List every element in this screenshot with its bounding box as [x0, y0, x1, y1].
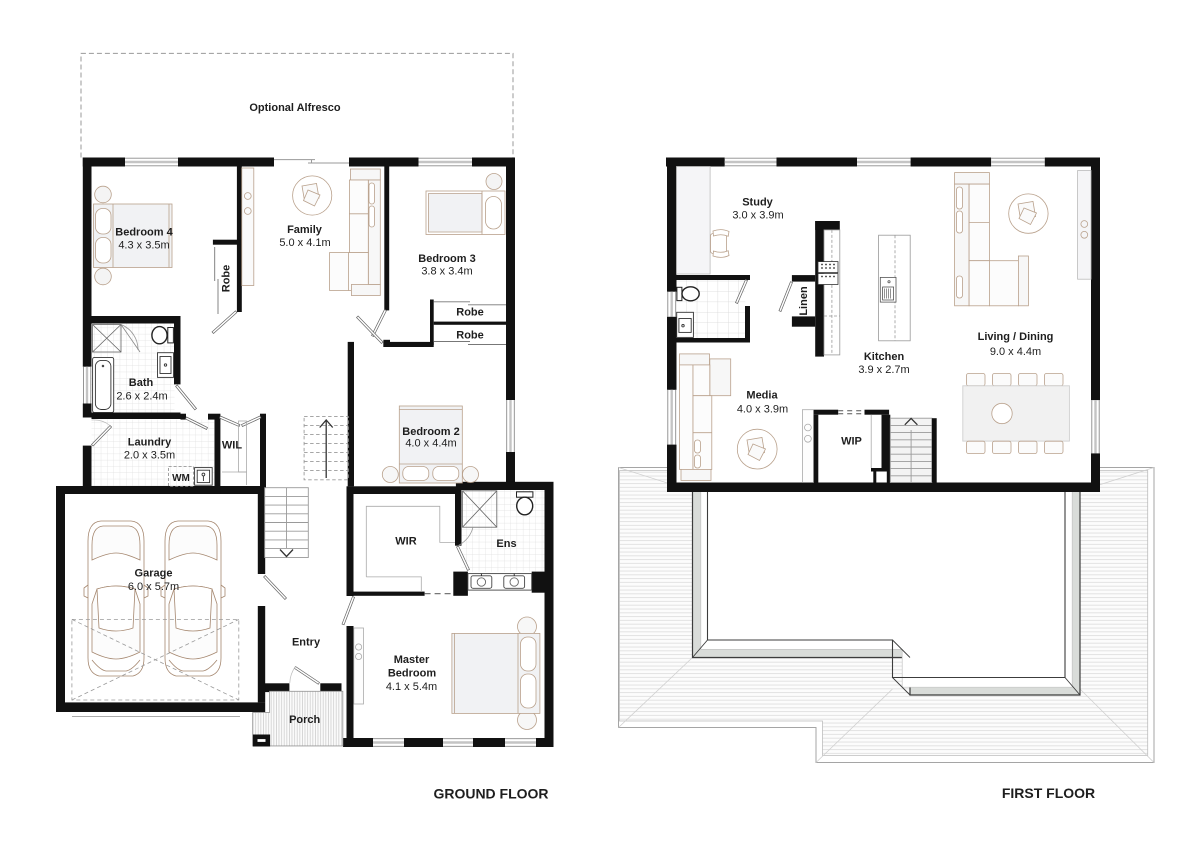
svg-text:3.0 x 3.9m: 3.0 x 3.9m [732, 210, 783, 222]
svg-text:Ens: Ens [496, 538, 516, 550]
svg-text:Media: Media [746, 390, 778, 402]
svg-text:Garage: Garage [135, 568, 173, 580]
svg-text:4.3 x 3.5m: 4.3 x 3.5m [118, 240, 169, 252]
svg-text:WIL: WIL [222, 440, 242, 452]
svg-text:Kitchen: Kitchen [864, 351, 905, 363]
svg-text:2.0 x 3.5m: 2.0 x 3.5m [124, 449, 175, 461]
svg-text:Entry: Entry [292, 637, 321, 649]
svg-text:WM: WM [172, 473, 190, 484]
svg-text:Master: Master [394, 654, 430, 666]
svg-text:Bedroom 3: Bedroom 3 [418, 253, 475, 265]
svg-text:WIR: WIR [395, 536, 416, 548]
svg-text:Study: Study [742, 197, 773, 209]
svg-text:4.0 x 3.9m: 4.0 x 3.9m [737, 404, 788, 416]
svg-text:GROUND FLOOR: GROUND FLOOR [433, 786, 548, 802]
svg-text:Laundry: Laundry [128, 437, 172, 449]
svg-text:Bath: Bath [129, 377, 154, 389]
svg-text:5.0 x 4.1m: 5.0 x 4.1m [279, 237, 330, 249]
svg-text:Bedroom: Bedroom [388, 668, 437, 680]
svg-text:Linen: Linen [798, 286, 810, 316]
svg-text:Bedroom 4: Bedroom 4 [115, 227, 173, 239]
svg-text:WIP: WIP [841, 436, 862, 448]
svg-text:Robe: Robe [456, 307, 484, 319]
svg-text:Optional Alfresco: Optional Alfresco [249, 102, 341, 114]
svg-text:Robe: Robe [456, 329, 484, 341]
svg-text:3.8 x 3.4m: 3.8 x 3.4m [421, 266, 472, 278]
svg-text:4.1 x 5.4m: 4.1 x 5.4m [386, 681, 437, 693]
svg-text:Family: Family [287, 224, 323, 236]
svg-text:Living / Dining: Living / Dining [978, 331, 1054, 343]
svg-text:FIRST FLOOR: FIRST FLOOR [1002, 785, 1095, 801]
svg-text:6.0 x 5.7m: 6.0 x 5.7m [128, 581, 179, 593]
svg-text:2.6 x 2.4m: 2.6 x 2.4m [116, 391, 167, 403]
svg-text:4.0 x 4.4m: 4.0 x 4.4m [405, 438, 456, 450]
svg-text:Robe: Robe [221, 265, 233, 293]
svg-text:Porch: Porch [289, 714, 320, 726]
svg-text:Bedroom 2: Bedroom 2 [402, 426, 459, 438]
svg-text:3.9 x 2.7m: 3.9 x 2.7m [858, 364, 909, 376]
svg-text:9.0 x 4.4m: 9.0 x 4.4m [990, 346, 1041, 358]
